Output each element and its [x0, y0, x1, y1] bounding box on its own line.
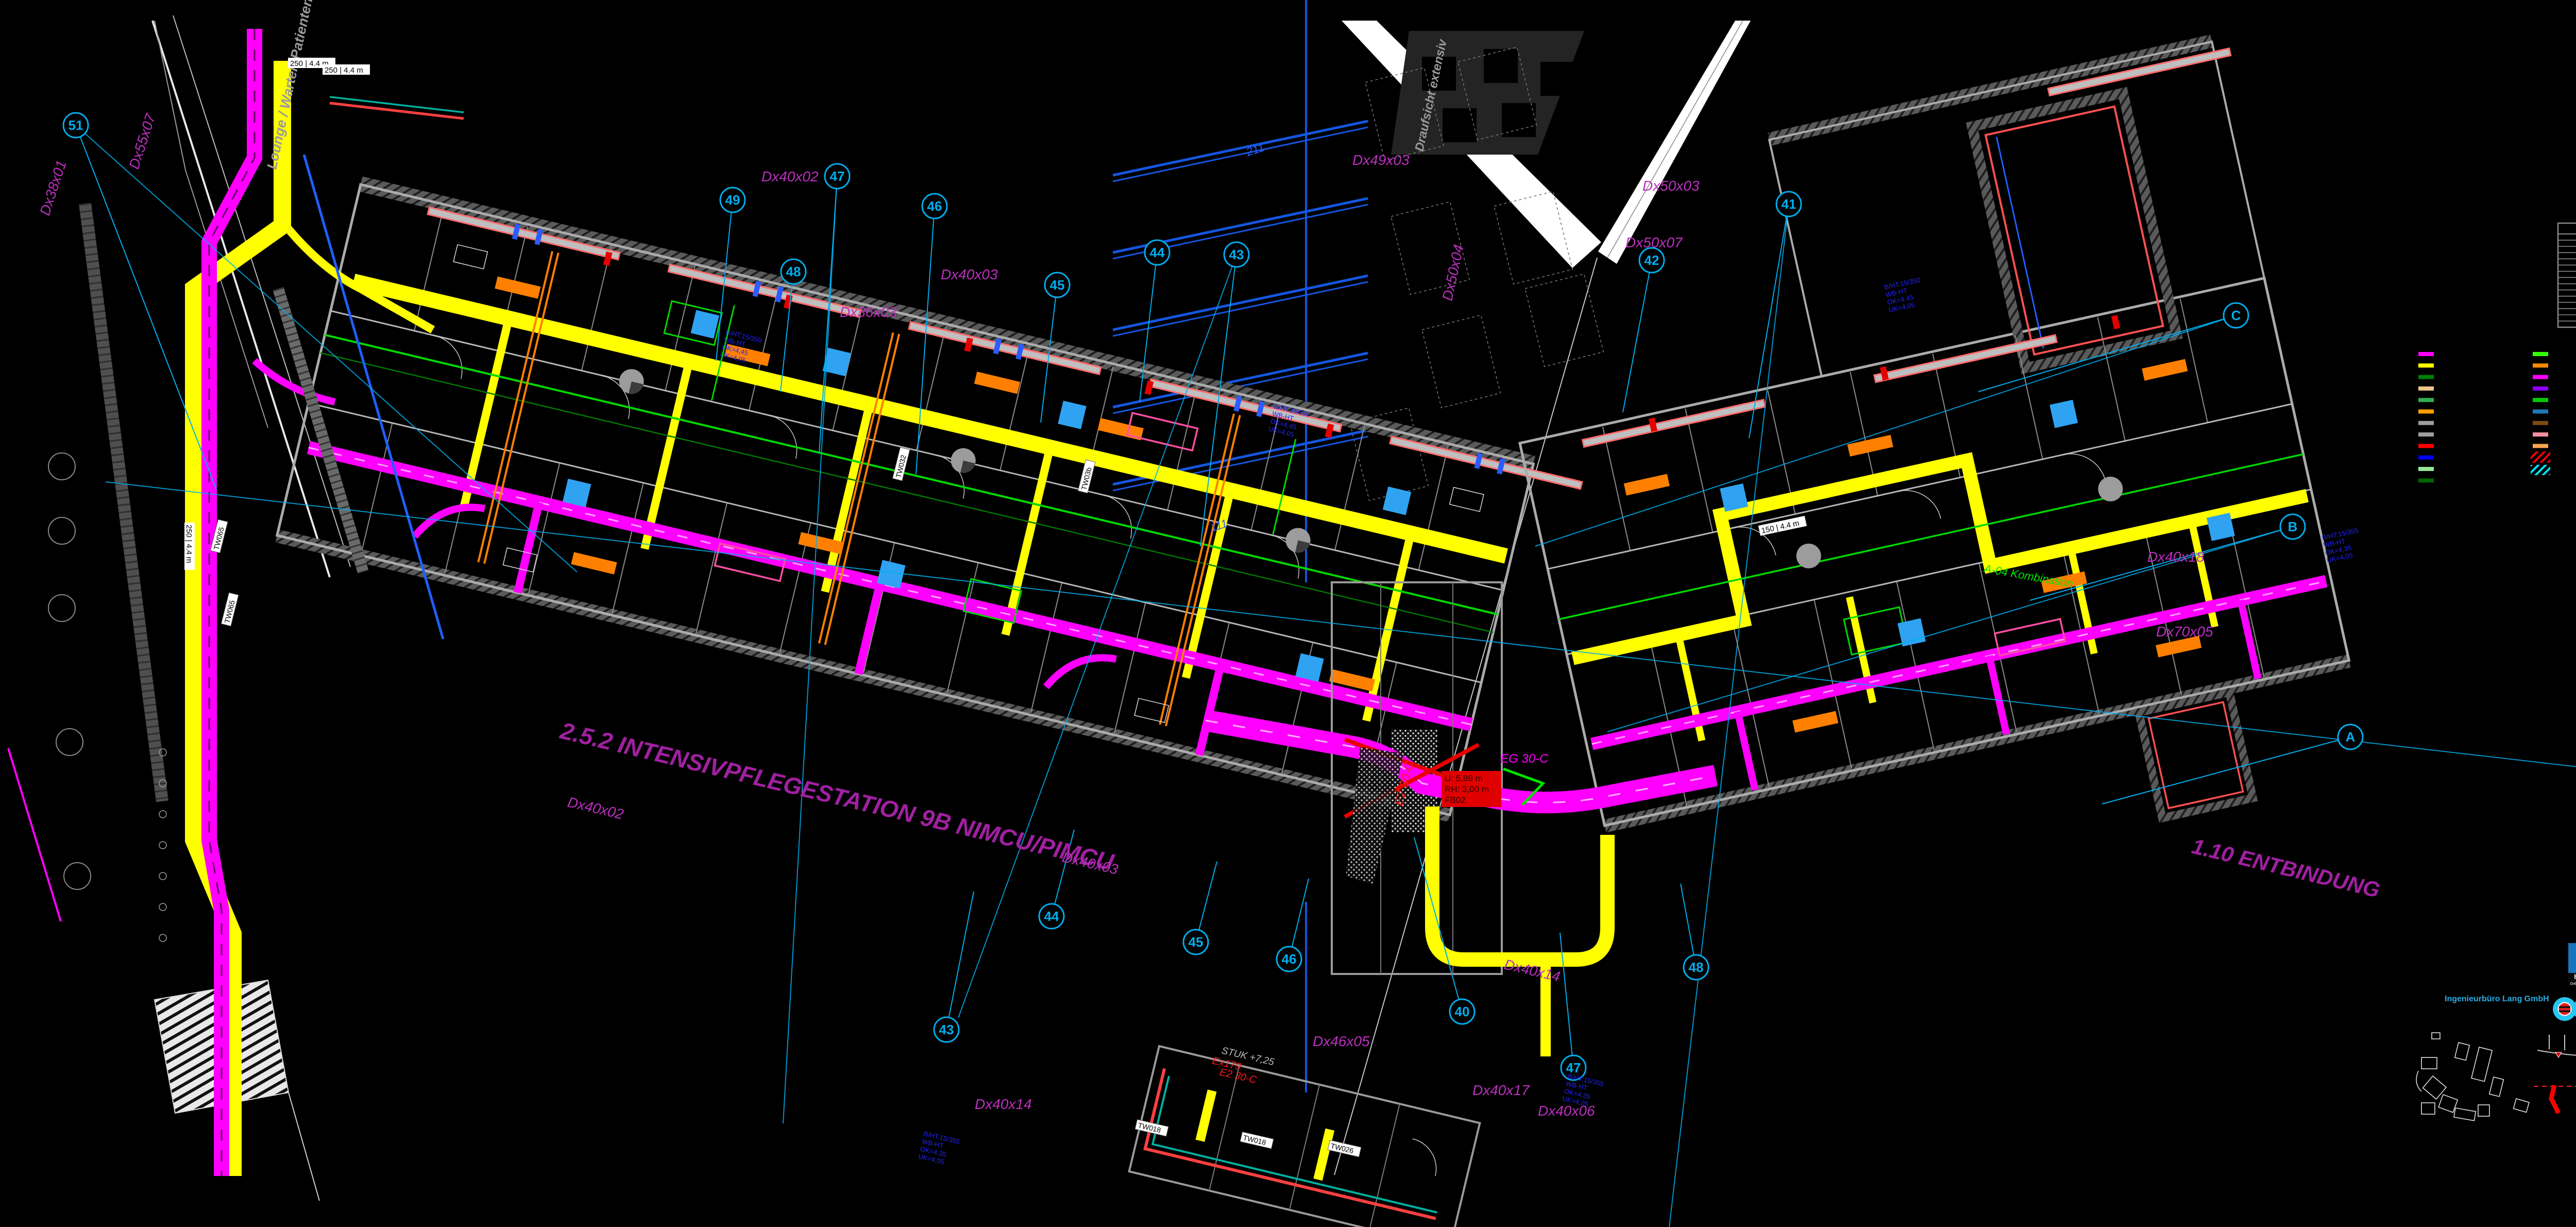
- clearance-note-line: RH: 3,00 m: [1445, 784, 1489, 794]
- note-label: EG 30-C: [1500, 752, 1549, 766]
- duct-spec-label: B/HT:15/350WB-HTOK=4,45UK=4,05: [1884, 276, 1926, 314]
- duct-spec-label: B/HT:15/355WB-HTOK=4,35UK=4,05: [2321, 526, 2364, 564]
- supply-duct-branch: [1366, 533, 1411, 721]
- grid-bubble-label: A: [2346, 729, 2355, 745]
- partition-wall: [749, 286, 778, 410]
- grid-axis-line: [783, 176, 837, 1123]
- component-tag: TW03b: [1078, 460, 1095, 493]
- road-line: [289, 1092, 319, 1201]
- supply-duct-branch: [825, 405, 870, 592]
- duct-id-label: Dx55x07: [126, 111, 159, 171]
- tree-symbol: [48, 595, 75, 621]
- logo-company-name: heiz-hofstätter: [2574, 973, 2576, 981]
- site-building-curve: [2416, 1071, 2421, 1091]
- label-box-orange: [1624, 474, 1670, 496]
- grid-bubble-label: 42: [1645, 253, 1659, 268]
- clearance-note-line: FB02: [1445, 795, 1466, 805]
- partition-wall: [1685, 409, 1713, 532]
- legend-swatch: [2533, 398, 2548, 402]
- road-line: [152, 21, 330, 577]
- legend-swatch: [2418, 352, 2434, 356]
- component-tag: TW026: [1328, 1140, 1361, 1156]
- site-location-map: [2416, 1033, 2576, 1121]
- legend-swatch: [2533, 421, 2548, 425]
- exhaust-duct-riser: [1199, 665, 1221, 755]
- grid-bubble-leader: [946, 892, 974, 1030]
- legend-swatch: [2418, 386, 2434, 391]
- roof-pipe-blue: [1113, 127, 1368, 181]
- supply-duct-branch: [645, 361, 689, 549]
- fire-damper: [2111, 315, 2120, 329]
- site-building: [2432, 1033, 2440, 1039]
- site-road: [2537, 1050, 2576, 1112]
- pipe-orange: [1166, 415, 1240, 726]
- note-label: A-04 Kombination: [1982, 562, 2074, 590]
- duct-id-label: Dx38x01: [37, 158, 70, 217]
- revision-table-outline: [2558, 223, 2576, 327]
- legend-swatch: [2418, 456, 2434, 460]
- duct-id-label: Dx40x17: [1472, 1082, 1530, 1098]
- grid-bubble-label: 48: [1689, 960, 1704, 975]
- engineering-firm-name: Ingenieurbüro Lang GmbH: [2445, 995, 2549, 1003]
- courtyard-wall: [1972, 93, 2177, 368]
- label-box-orange: [974, 372, 1020, 394]
- exhaust-duct-riser: [1989, 656, 2007, 734]
- equipment-blue: [1058, 401, 1086, 429]
- site-building: [2478, 1105, 2489, 1116]
- tree-symbol: [48, 453, 75, 480]
- duct-id-label: Dx50x07: [1625, 234, 1683, 250]
- cooling-pipe-teal: [1153, 1076, 1453, 1213]
- grid-bubble: 43: [934, 892, 974, 1042]
- duct-id-label: Dx70x05: [2156, 624, 2213, 640]
- cad-canvas: 5149484746454443424140434445464748CBA 2.…: [0, 0, 2576, 1227]
- site-building: [2454, 1108, 2476, 1121]
- legend-swatch: [2533, 444, 2548, 448]
- partition-wall: [1335, 426, 1364, 550]
- legend-swatch: [2533, 352, 2548, 356]
- duct-size-tag-text: 250 | 4.4 m: [184, 525, 193, 563]
- equipment-blue: [1383, 486, 1411, 515]
- component-tag: TW032: [892, 447, 909, 481]
- round-duct-elbow: [415, 494, 485, 551]
- partition-wall: [1031, 582, 1062, 713]
- duct-id-label: Dx40x18: [2147, 549, 2205, 565]
- duct-stub: [1200, 1090, 1212, 1140]
- legend-swatch: [2418, 375, 2434, 379]
- grid-bubble-label: 46: [1282, 951, 1297, 967]
- component-tag: TW018: [1240, 1132, 1274, 1148]
- courtyard-blue-pipe: [1996, 137, 2043, 348]
- duct-size-tag: 250 | 4.4 m: [323, 64, 370, 75]
- equipment-blue: [2049, 400, 2078, 428]
- grid-bubble-label: 44: [1150, 245, 1165, 260]
- legend-swatch: [2533, 432, 2548, 436]
- heating-pipe-red: [1145, 1069, 1455, 1219]
- site-building: [2489, 1077, 2504, 1097]
- grid-bubble-leader: [1749, 204, 1789, 438]
- duct-size-tag-text: 250 | 4.4 m: [325, 66, 363, 75]
- annex-group: [1129, 1046, 1480, 1227]
- legend: [2418, 352, 2550, 482]
- legend-swatch: [2418, 432, 2434, 436]
- site-marker: [2555, 1052, 2562, 1057]
- legend-swatch: [2533, 375, 2548, 379]
- tree-symbol: [48, 517, 75, 544]
- exhaust-duct-trunk: [1592, 581, 2326, 744]
- equipment-blue: [1720, 483, 1748, 512]
- label-box-orange: [571, 552, 617, 574]
- legend-swatch: [2418, 421, 2434, 425]
- component-tag: TW065: [221, 593, 238, 626]
- duct-id-label: Dx40x14: [975, 1096, 1032, 1112]
- duct-stub: [1318, 1130, 1330, 1180]
- tree-symbol: [64, 863, 91, 889]
- round-duct-elbow: [1046, 645, 1116, 701]
- title-block: h heiz-hofstätter Gebäudetechnik - Anlag…: [2416, 943, 2576, 1121]
- grid-bubble-label: 51: [69, 117, 83, 133]
- supply-duct-loop: [1432, 806, 1607, 960]
- grid-bubble-label: C: [2231, 308, 2241, 323]
- courtyard2-red-line: [2149, 702, 2243, 808]
- room-name-label: 2.5.2 INTENSIVPFLEGESTATION 9B NIMCU/PIM…: [557, 717, 1117, 876]
- legend-swatch-hatched-red: [2531, 451, 2550, 463]
- legend-swatch: [2533, 410, 2548, 414]
- tree-symbol: [56, 729, 83, 755]
- grid-bubble-label: 43: [939, 1022, 954, 1037]
- grid-bubble-label: 48: [786, 264, 801, 279]
- grid-bubble-leader: [819, 176, 837, 453]
- label-box-orange: [1792, 711, 1838, 733]
- duct-id-label: Dx50x04: [1439, 243, 1467, 302]
- floor-plan-drawing: 5149484746454443424140434445464748CBA 2.…: [0, 0, 2576, 1227]
- label-box-orange: [495, 276, 540, 298]
- grid-bubble: 45: [1183, 862, 1217, 954]
- walkway-centerline: [1607, 21, 1743, 258]
- site-building: [2513, 1099, 2529, 1112]
- duct-id-label: Dx46x05: [1313, 1033, 1370, 1049]
- legend-swatch: [2418, 478, 2434, 482]
- wing-a-group: [276, 176, 1586, 834]
- grid-bubble-label: 44: [1044, 909, 1059, 924]
- legend-swatch: [2418, 410, 2434, 414]
- note-label: 211: [1244, 141, 1266, 159]
- legend-swatch: [2418, 398, 2434, 402]
- logo-background: [2568, 943, 2576, 973]
- skylight: [1502, 103, 1536, 137]
- grid-bubble: 48: [781, 259, 806, 392]
- supply-duct-branch: [1006, 447, 1050, 635]
- duct-id-label: Dx36x03: [840, 304, 897, 320]
- grid-bubble-label: 43: [1229, 247, 1244, 262]
- pipe-green: [325, 335, 1497, 614]
- pipe-orange: [1160, 414, 1234, 725]
- grid-bubble-label: 47: [830, 169, 845, 184]
- partition-wall: [1000, 346, 1029, 470]
- site-road: [2549, 1035, 2565, 1050]
- grid-bubble-leader: [916, 206, 935, 474]
- fixture: [453, 245, 487, 269]
- bollard-symbol: [159, 811, 166, 818]
- legend-swatch: [2418, 467, 2434, 471]
- grid-bubble-label: 41: [1782, 196, 1797, 212]
- site-building: [2421, 1057, 2437, 1069]
- grid-bubble-leader: [1623, 260, 1652, 412]
- grid-bubble-leader: [2102, 737, 2350, 804]
- equipment-blue: [2207, 513, 2235, 541]
- label-box-orange: [2142, 359, 2188, 381]
- grid-axis-line: [1669, 204, 1789, 1227]
- partition-wall: [917, 326, 946, 450]
- duct-id-label: Dx40x02: [566, 794, 625, 822]
- grid-bubble-label: 40: [1455, 1004, 1470, 1019]
- duct-id-label: Dx40x02: [761, 169, 819, 184]
- pipe-orange: [825, 334, 900, 645]
- site-building: [2455, 1043, 2470, 1060]
- door-swing: [1405, 1139, 1443, 1176]
- duct-size-tag: 250 | 4.4 m: [184, 523, 195, 570]
- room-name-label: 1.10 ENTBINDUNG: [2190, 834, 2382, 902]
- grid-bubble-label: 45: [1189, 934, 1204, 950]
- grid-bubble-label: 45: [1050, 277, 1065, 293]
- label-box-orange: [1848, 435, 1893, 457]
- duct-spec-label: B/HT:15/355WB-HTOK=4,35UK=4,05: [918, 1130, 960, 1168]
- magenta-site-line: [8, 748, 61, 921]
- site-access-road-red: [2551, 1085, 2558, 1113]
- fire-damper: [1144, 380, 1154, 395]
- roof-edge-line: [1334, 258, 1597, 1175]
- roof-walkway-band: [1598, 21, 1751, 264]
- skylight: [1540, 62, 1574, 96]
- pipe-green: [1273, 439, 1296, 534]
- logo-company-subtitle: Gebäudetechnik - Anlagentechnik: [2570, 982, 2576, 986]
- bollard-symbol: [159, 842, 166, 849]
- building-wing-left: [276, 176, 1586, 834]
- grid-bubble: 42: [1623, 248, 1664, 412]
- partition-wall: [1114, 602, 1145, 733]
- site-building: [2421, 1103, 2435, 1114]
- grid-bubble-label: B: [2288, 519, 2298, 534]
- legend-swatch: [2418, 444, 2434, 448]
- legend-swatch-hatched-cyan: [2531, 465, 2550, 475]
- duct-id-label: Dx50x03: [1642, 178, 1700, 194]
- clearance-note-line: U: 5,89 m: [1445, 774, 1483, 783]
- annex-outline: [1129, 1046, 1480, 1227]
- roof-pipe-blue: [1113, 282, 1368, 336]
- revision-table: [2558, 223, 2576, 327]
- exhaust-duct-riser: [858, 584, 880, 674]
- bollard-symbol: [159, 934, 166, 942]
- roof-pipe-blue: [1113, 121, 1368, 175]
- exhaust-duct-riser: [1738, 712, 1755, 790]
- skylight-dashed: [1422, 315, 1500, 408]
- partition-wall: [414, 207, 444, 331]
- equipment-blue: [1897, 618, 1926, 647]
- bollard-symbol: [159, 903, 166, 911]
- site-building: [2471, 1047, 2492, 1081]
- equipment-blue: [691, 310, 719, 339]
- grid-bubble-label: 49: [725, 192, 740, 208]
- duct-size-tag: 150 | 4.4 m: [1758, 516, 1807, 536]
- exhaust-duct-riser: [518, 502, 539, 593]
- duct-id-label: Dx40x03: [941, 266, 998, 282]
- clearance-note: U: 5,89 mRH: 3,00 mFB02: [1442, 771, 1501, 807]
- legend-swatch: [2418, 363, 2434, 367]
- partition-wall: [613, 483, 643, 613]
- skylight: [1443, 108, 1477, 142]
- grid-bubble-label: 46: [927, 198, 942, 214]
- legend-swatch: [2533, 386, 2548, 391]
- grid-bubble: 46: [1277, 879, 1309, 971]
- bollard-symbol: [159, 872, 166, 880]
- duct-id-label: Dx49x03: [1352, 152, 1410, 168]
- skylight-dashed: [1525, 274, 1603, 366]
- legend-swatch: [2533, 363, 2548, 367]
- fixture: [1450, 488, 1484, 512]
